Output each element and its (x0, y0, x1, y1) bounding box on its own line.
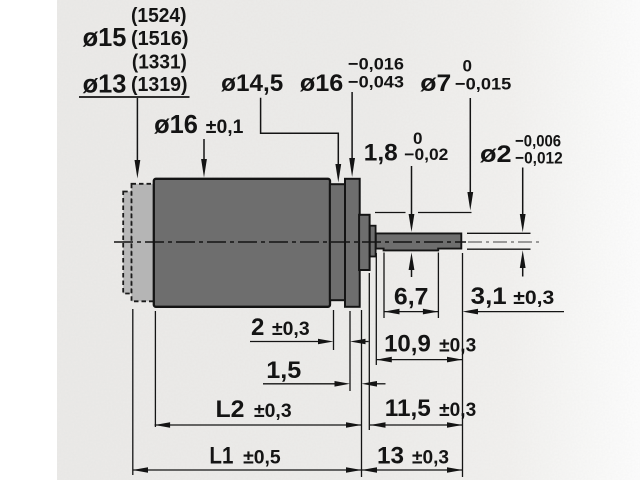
svg-text:(1516): (1516) (131, 28, 189, 50)
svg-text:−0,043: −0,043 (348, 73, 404, 92)
svg-text:11,5: 11,5 (385, 395, 431, 422)
svg-text:ø2: ø2 (480, 141, 512, 168)
svg-text:±0,3: ±0,3 (412, 447, 449, 468)
svg-text:0: 0 (463, 57, 472, 76)
svg-text:L2: L2 (216, 396, 245, 423)
svg-text:10,9: 10,9 (384, 331, 431, 358)
svg-text:−0,015: −0,015 (455, 75, 511, 94)
svg-text:ø16: ø16 (300, 70, 343, 97)
svg-text:ø15: ø15 (83, 22, 127, 52)
svg-text:±0,1: ±0,1 (206, 117, 244, 138)
svg-text:ø16: ø16 (154, 109, 198, 139)
svg-text:±0,3: ±0,3 (272, 319, 310, 340)
svg-text:−0,016: −0,016 (348, 55, 404, 74)
svg-text:±0,3: ±0,3 (439, 400, 476, 421)
svg-text:6,7: 6,7 (394, 284, 429, 311)
svg-text:ø14,5: ø14,5 (221, 70, 283, 97)
svg-text:−0,02: −0,02 (404, 145, 448, 164)
svg-text:±0,3: ±0,3 (439, 336, 476, 357)
svg-text:(1319): (1319) (131, 74, 188, 96)
svg-text:−0,012: −0,012 (515, 149, 563, 168)
svg-text:1,5: 1,5 (266, 357, 301, 384)
svg-text:ø7: ø7 (420, 70, 451, 97)
svg-text:±0,3: ±0,3 (254, 401, 292, 422)
svg-text:±0,5: ±0,5 (243, 447, 281, 468)
svg-text:2: 2 (251, 314, 264, 341)
svg-text:3,1: 3,1 (471, 283, 507, 310)
svg-text:(1331): (1331) (132, 52, 187, 74)
svg-text:L1: L1 (209, 442, 233, 469)
svg-text:1,8: 1,8 (364, 140, 398, 167)
svg-text:±0,3: ±0,3 (513, 288, 554, 309)
svg-text:ø13: ø13 (83, 69, 127, 99)
svg-text:(1524): (1524) (131, 5, 187, 27)
svg-text:13: 13 (377, 442, 404, 469)
